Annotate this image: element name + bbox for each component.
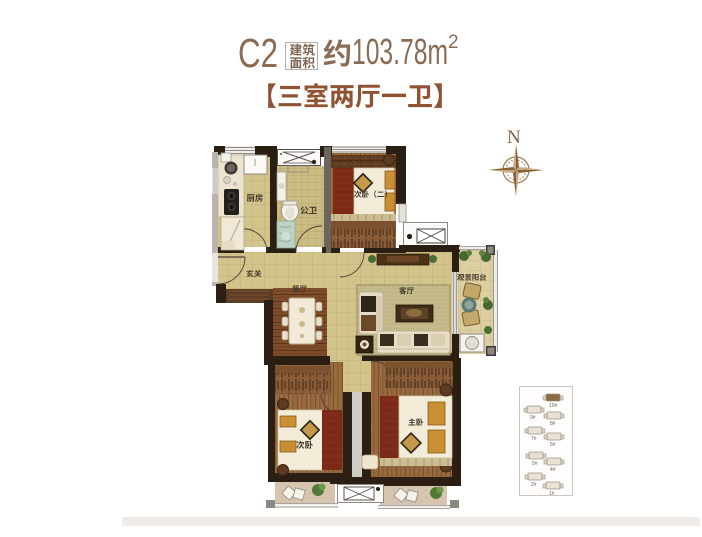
svg-text:C2: C2 [238,30,278,76]
svg-text:10#: 10# [549,403,558,409]
svg-text:1#: 1# [549,491,555,497]
svg-text:7#: 7# [531,436,537,442]
svg-text:N: N [507,127,521,148]
svg-text:4#: 4# [550,467,556,473]
svg-text:9#: 9# [530,415,536,421]
svg-text:2#: 2# [531,482,537,488]
svg-text:8#: 8# [550,421,556,427]
svg-text:6#: 6# [550,442,556,448]
svg-text:5#: 5# [532,461,538,467]
svg-text:103.78m: 103.78m [352,31,448,72]
svg-text:2: 2 [448,32,459,53]
